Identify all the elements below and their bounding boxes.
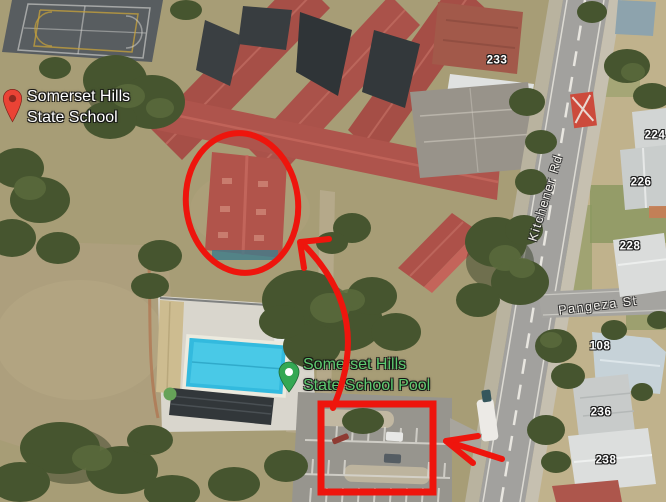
circled-building xyxy=(205,152,287,260)
satellite-imagery xyxy=(0,0,666,502)
sports-courts xyxy=(2,0,163,62)
satellite-map-canvas[interactable]: Somerset Hills State School Somerset Hil… xyxy=(0,0,666,502)
parking-island xyxy=(344,465,431,485)
parked-car xyxy=(481,389,492,402)
house-roof xyxy=(615,0,656,36)
parked-car xyxy=(386,432,403,442)
pool-map-pin[interactable] xyxy=(277,361,301,393)
parked-car xyxy=(384,454,401,464)
school-map-pin[interactable] xyxy=(2,88,23,124)
bus-zone-marking xyxy=(570,92,597,129)
building-233 xyxy=(432,2,523,74)
water-tank xyxy=(164,388,177,401)
